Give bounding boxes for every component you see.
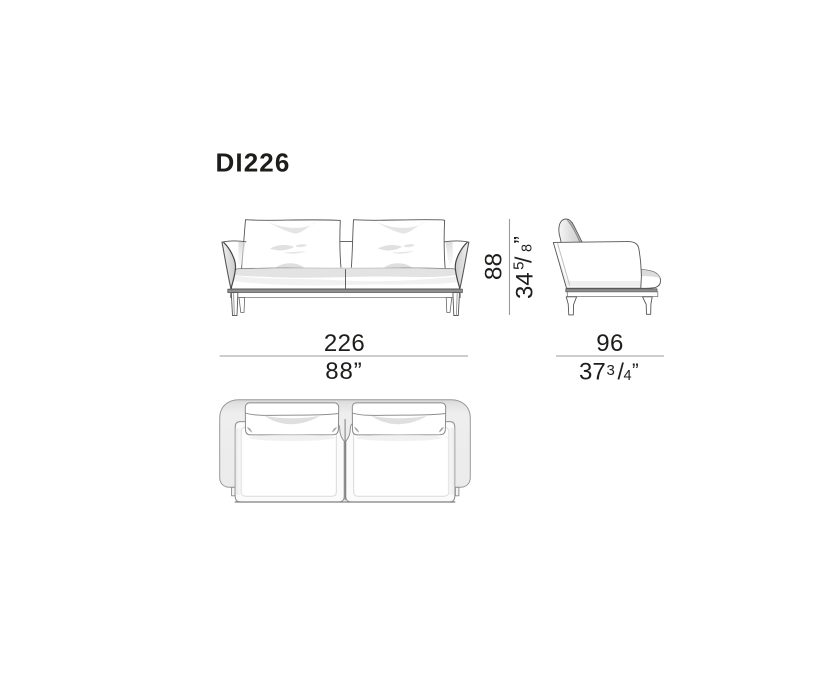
svg-text:8: 8 bbox=[520, 244, 536, 252]
svg-text:DI226: DI226 bbox=[216, 148, 291, 178]
svg-text:34: 34 bbox=[512, 272, 539, 299]
svg-text:96: 96 bbox=[596, 330, 624, 357]
svg-text:”: ” bbox=[510, 236, 535, 243]
svg-text:/: / bbox=[511, 256, 537, 263]
svg-text:3: 3 bbox=[607, 362, 615, 379]
svg-text:”: ” bbox=[632, 361, 639, 383]
svg-text:226: 226 bbox=[324, 330, 365, 357]
svg-text:37: 37 bbox=[579, 359, 606, 386]
svg-text:88”: 88” bbox=[325, 358, 362, 385]
svg-text:4: 4 bbox=[624, 368, 632, 384]
svg-text:88: 88 bbox=[481, 253, 508, 280]
